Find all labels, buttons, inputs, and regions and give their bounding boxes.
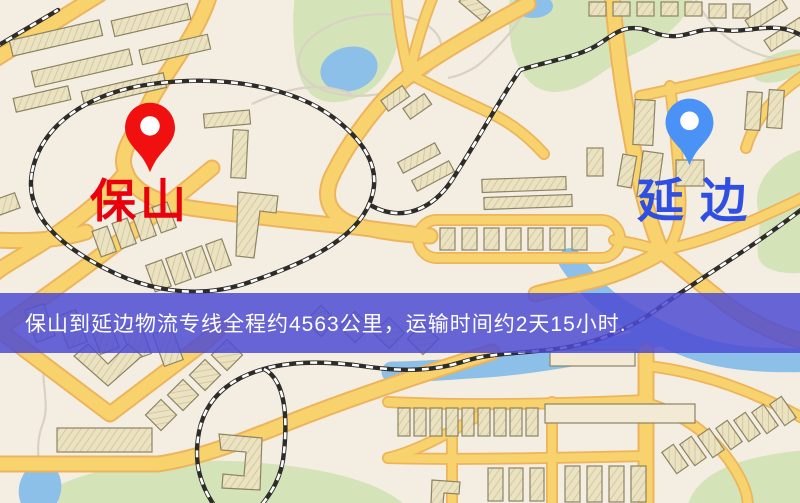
base-map — [0, 0, 800, 503]
destination-label: 延边 — [637, 177, 763, 224]
origin-pin-icon — [122, 100, 178, 174]
route-info-banner: 保山到延边物流专线全程约4563公里，运输时间约2天15小时. — [0, 293, 800, 353]
destination-pin-icon — [662, 96, 717, 167]
route-info-text: 保山到延边物流专线全程约4563公里，运输时间约2天15小时. — [25, 308, 627, 338]
origin-label: 保山 — [90, 178, 190, 224]
map-canvas: 保山 延边 保山到延边物流专线全程约4563公里，运输时间约2天15小时. — [0, 0, 800, 503]
